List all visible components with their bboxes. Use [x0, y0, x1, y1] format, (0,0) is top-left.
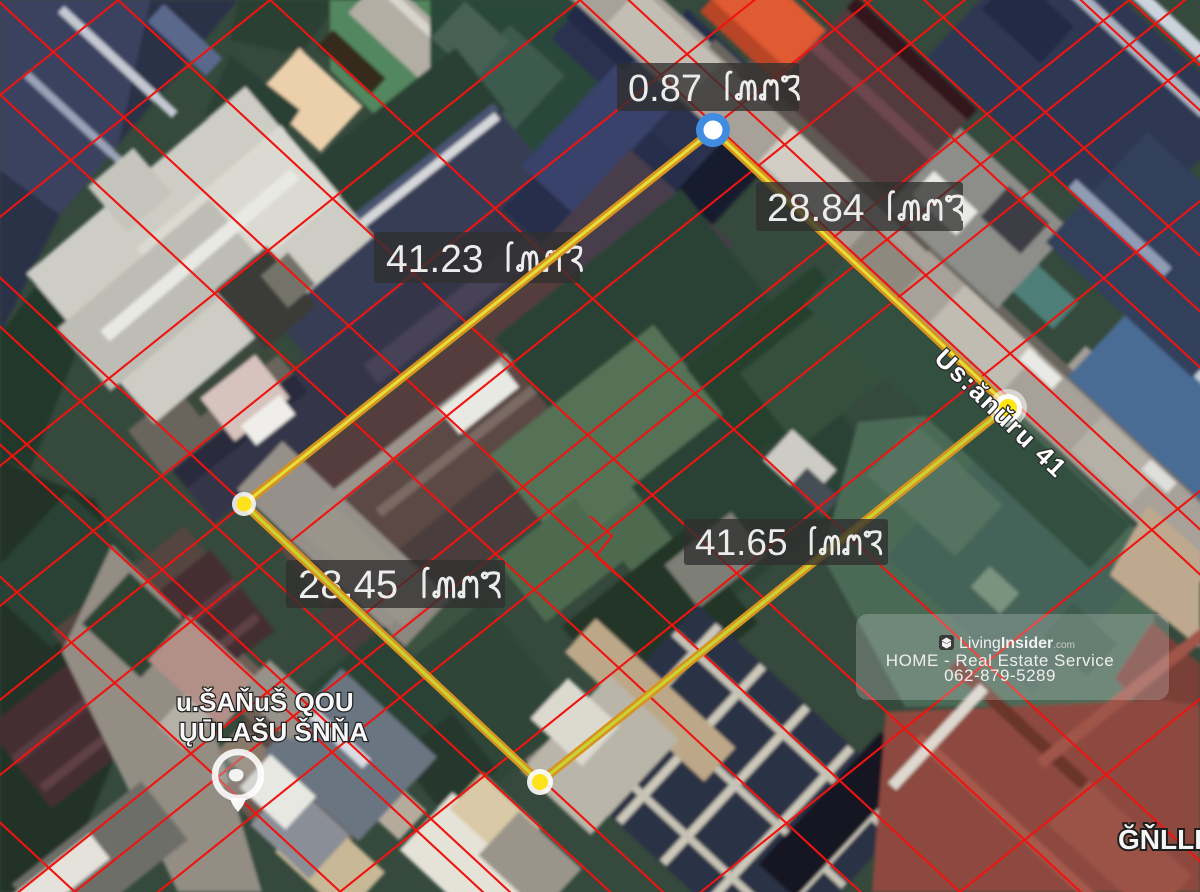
- svg-text:062-879-5289: 062-879-5289: [944, 666, 1056, 685]
- svg-text:41.23: 41.23: [386, 238, 484, 281]
- svg-text:28.84: 28.84: [767, 187, 865, 230]
- svg-text:ŲŪLAŠU ŠNŇA: ŲŪLAŠU ŠNŇA: [179, 717, 368, 747]
- svg-text:u.ŠAŇuŠ QOU: u.ŠAŇuŠ QOU: [176, 687, 354, 717]
- svg-text:ĞŇLLHU: ĞŇLLHU: [1118, 824, 1200, 855]
- svg-text:41.65: 41.65: [695, 522, 788, 563]
- svg-text:0.87: 0.87: [628, 68, 702, 110]
